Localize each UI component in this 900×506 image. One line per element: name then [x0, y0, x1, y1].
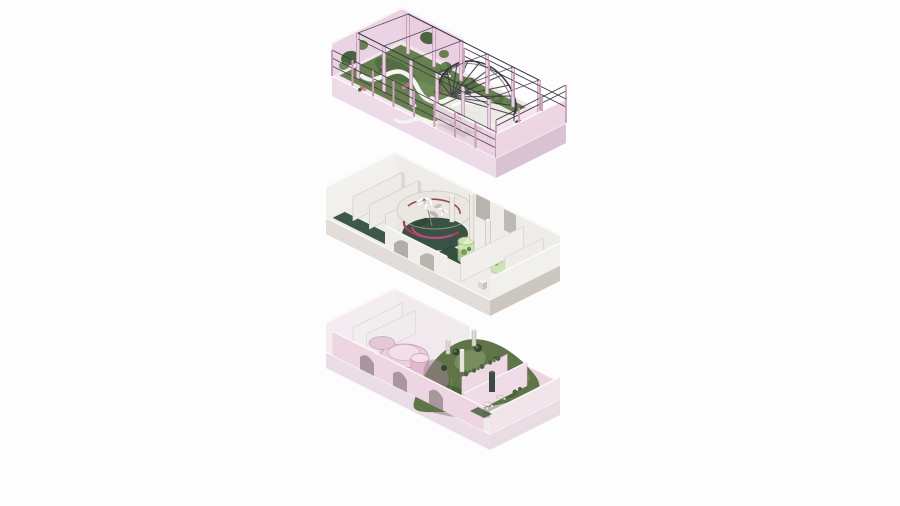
level-roof-garden-terrace	[332, 7, 566, 179]
exploded-axonometric-svg	[0, 0, 900, 506]
ground-dark-column	[489, 371, 495, 393]
architectural-visualization	[0, 0, 900, 506]
level-middle-interior	[326, 151, 560, 317]
level-ground-garden	[326, 287, 560, 451]
